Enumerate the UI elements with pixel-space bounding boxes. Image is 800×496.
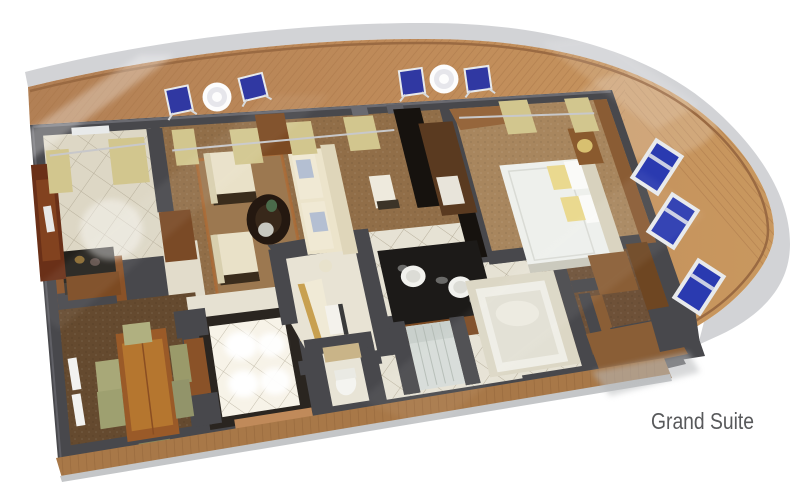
svg-text:Grand Suite: Grand Suite [651,408,754,434]
